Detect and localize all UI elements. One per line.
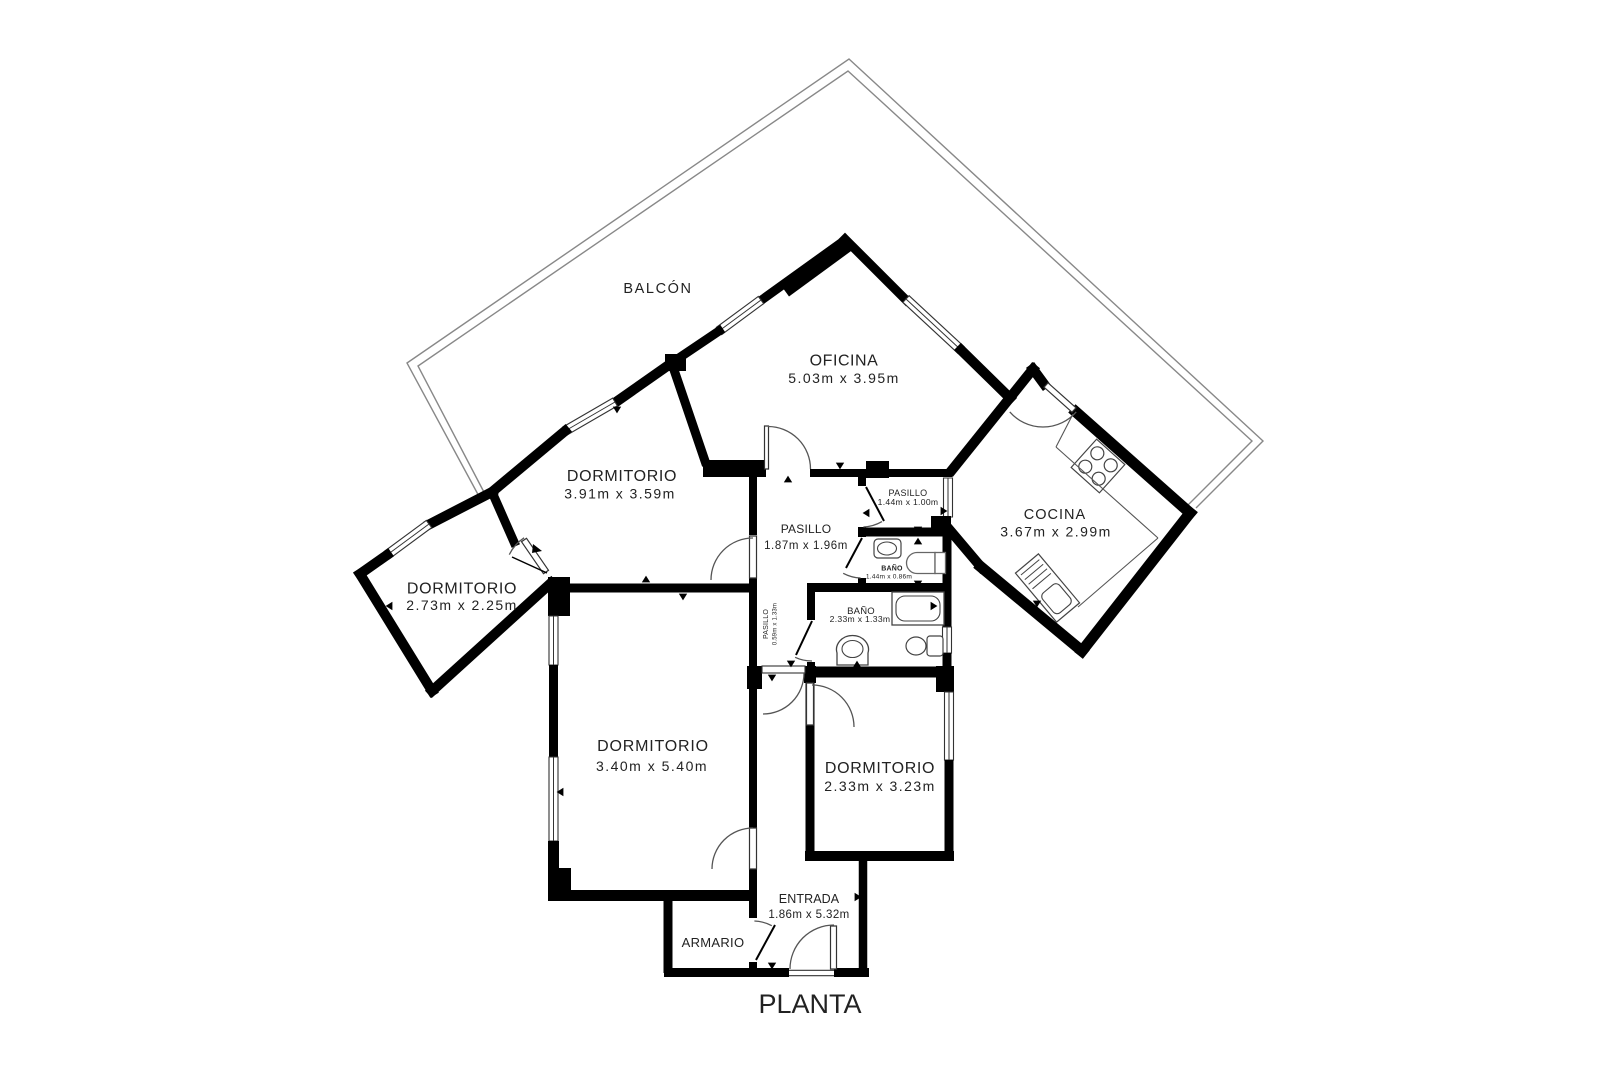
svg-text:0.59m x 1.33m: 0.59m x 1.33m: [773, 603, 779, 645]
svg-text:1.87m x 1.96m: 1.87m x 1.96m: [764, 540, 848, 552]
svg-text:3.40m x 5.40m: 3.40m x 5.40m: [596, 758, 708, 774]
svg-text:DORMITORIO: DORMITORIO: [597, 738, 709, 755]
svg-text:2.73m x 2.25m: 2.73m x 2.25m: [406, 597, 517, 613]
svg-text:ARMARIO: ARMARIO: [682, 935, 745, 950]
svg-text:DORMITORIO: DORMITORIO: [407, 581, 517, 598]
svg-text:1.44m x 0.86m: 1.44m x 0.86m: [866, 574, 913, 581]
svg-text:PASILLO: PASILLO: [763, 609, 770, 639]
svg-text:DORMITORIO: DORMITORIO: [567, 468, 677, 485]
svg-text:DORMITORIO: DORMITORIO: [825, 760, 935, 777]
svg-text:3.91m x 3.59m: 3.91m x 3.59m: [564, 486, 675, 502]
svg-text:1.44m x 1.00m: 1.44m x 1.00m: [878, 497, 939, 507]
svg-text:PASILLO: PASILLO: [781, 522, 832, 536]
svg-text:BAÑO: BAÑO: [881, 564, 903, 573]
svg-text:2.33m x 3.23m: 2.33m x 3.23m: [824, 778, 935, 794]
svg-text:BALCÓN: BALCÓN: [623, 280, 692, 297]
svg-text:5.03m x 3.95m: 5.03m x 3.95m: [788, 370, 899, 386]
svg-text:2.33m x 1.33m: 2.33m x 1.33m: [830, 614, 891, 624]
svg-text:1.86m x 5.32m: 1.86m x 5.32m: [768, 909, 849, 921]
svg-text:COCINA: COCINA: [1024, 507, 1086, 523]
svg-text:3.67m x 2.99m: 3.67m x 2.99m: [1000, 524, 1111, 540]
svg-text:ENTRADA: ENTRADA: [779, 892, 840, 906]
svg-text:OFICINA: OFICINA: [810, 353, 879, 370]
svg-text:PLANTA: PLANTA: [758, 989, 861, 1019]
